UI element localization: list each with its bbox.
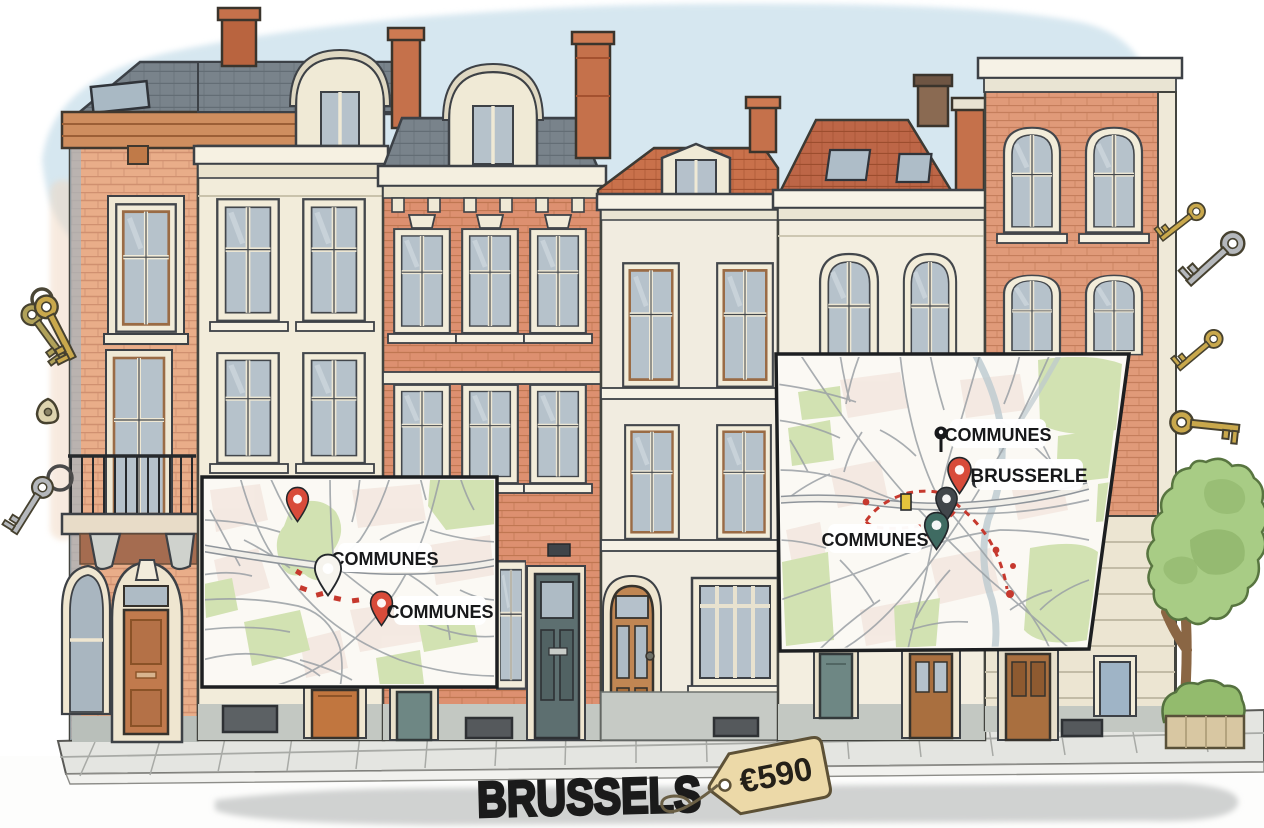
svg-text:COMMUNES: COMMUNES bbox=[822, 530, 929, 550]
svg-text:COMMUNES: COMMUNES bbox=[387, 602, 494, 622]
svg-text:BRUSSERLE: BRUSSERLE bbox=[970, 466, 1087, 487]
svg-text:COMMUNES: COMMUNES bbox=[945, 425, 1052, 445]
svg-text:COMMUNES: COMMUNES bbox=[332, 549, 439, 569]
